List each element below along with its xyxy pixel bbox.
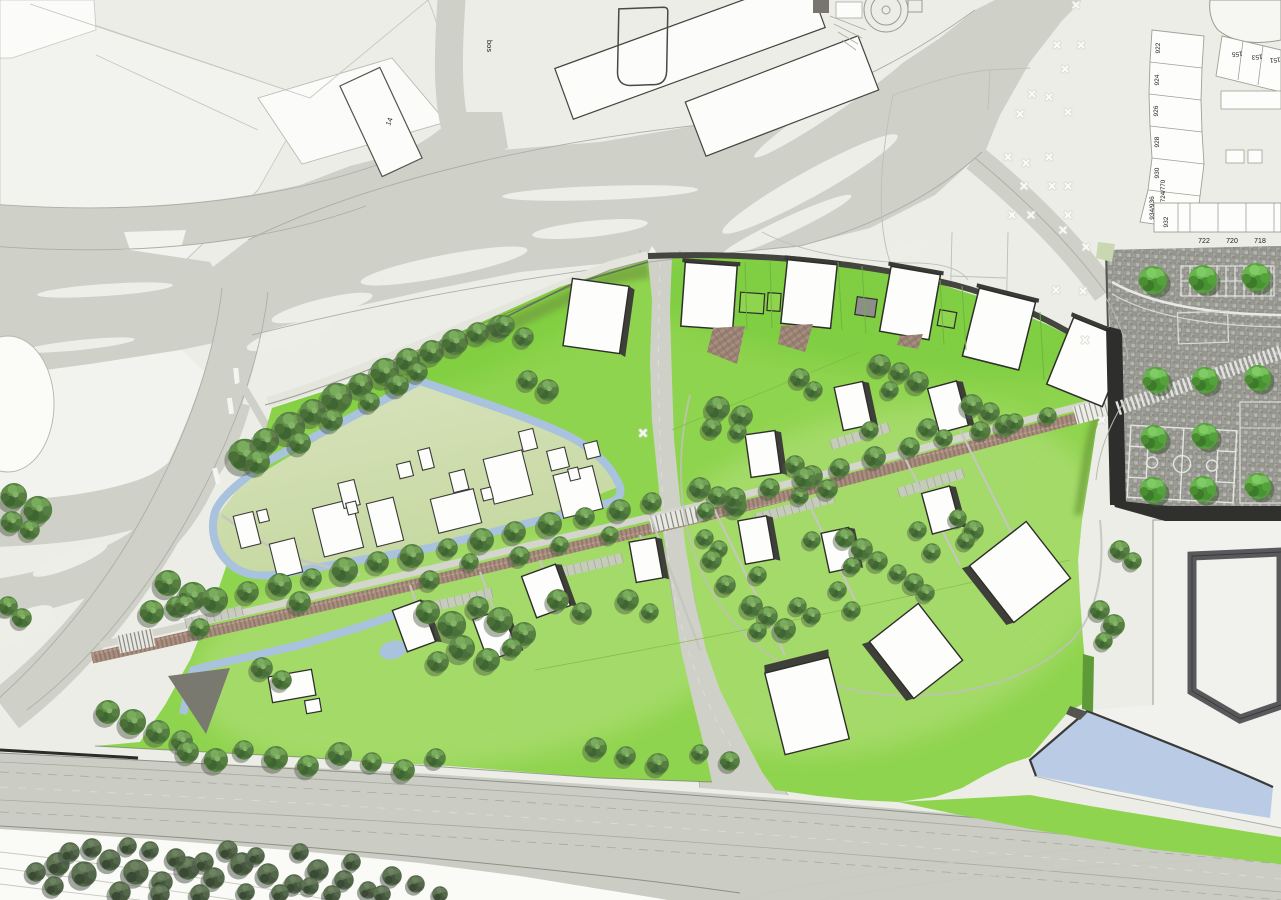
svg-text:151: 151: [1269, 56, 1281, 64]
svg-text:bos: bos: [485, 40, 494, 52]
svg-text:930: 930: [1154, 167, 1161, 178]
svg-text:924: 924: [1154, 74, 1161, 85]
svg-text:155: 155: [1231, 50, 1243, 58]
svg-text:153: 153: [1251, 53, 1263, 61]
svg-text:720: 720: [1226, 238, 1238, 245]
svg-text:926: 926: [1153, 105, 1160, 116]
svg-text:932: 932: [1163, 216, 1170, 227]
svg-text:934/936: 934/936: [1149, 196, 1156, 220]
svg-text:722: 722: [1198, 238, 1210, 245]
svg-text:928: 928: [1154, 136, 1161, 147]
svg-text:718: 718: [1254, 238, 1266, 245]
svg-text:922: 922: [1155, 42, 1162, 53]
svg-text:724/770: 724/770: [1160, 179, 1167, 202]
